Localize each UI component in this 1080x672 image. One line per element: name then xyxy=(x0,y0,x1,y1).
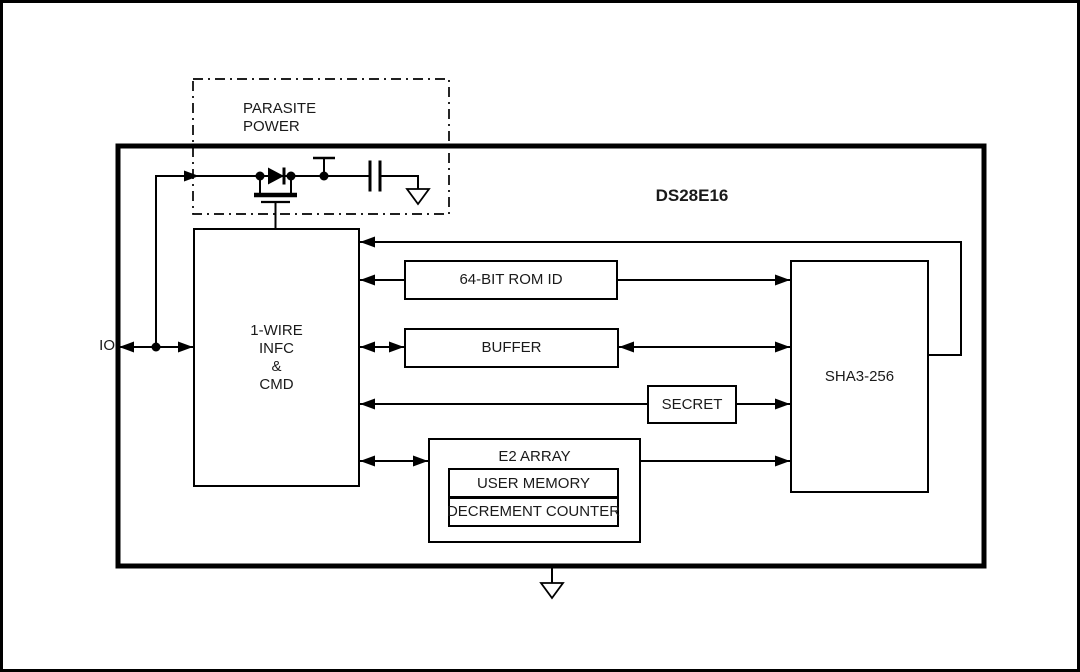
parasite-power-label: PARASITE POWER xyxy=(243,100,363,136)
diode-icon xyxy=(268,168,284,185)
arrowhead-left xyxy=(360,237,375,248)
sha3-block-label: SHA3-256 xyxy=(791,261,928,492)
arrowhead-right xyxy=(184,171,199,182)
buffer-block-label: BUFFER xyxy=(405,329,618,367)
onewire-label-line3: & xyxy=(271,358,281,376)
user-memory-block-label: USER MEMORY xyxy=(449,469,618,498)
parasite-power-label-line2: POWER xyxy=(243,118,300,136)
onewire-block-label: 1-WIRE INFC & CMD xyxy=(194,229,359,486)
parasite-power-label-line1: PARASITE xyxy=(243,100,316,118)
arrowhead-right xyxy=(775,456,790,467)
arrowhead-right xyxy=(413,456,428,467)
arrowhead-left xyxy=(360,456,375,467)
ground-icon xyxy=(541,583,563,598)
arrowhead-right xyxy=(178,342,193,353)
onewire-label-line1: 1-WIRE xyxy=(250,322,303,340)
arrowhead-right xyxy=(775,275,790,286)
arrowhead-right xyxy=(775,342,790,353)
rom-id-block-label: 64-BIT ROM ID xyxy=(405,261,617,299)
arrowhead-left xyxy=(360,399,375,410)
chip-ground xyxy=(541,568,563,598)
capacitor-icon xyxy=(370,161,418,192)
mosfet-icon xyxy=(254,176,297,230)
arrowhead-left xyxy=(360,275,375,286)
chip-title: DS28E16 xyxy=(603,187,781,205)
arrowhead-left xyxy=(360,342,375,353)
onewire-label-line4: CMD xyxy=(259,376,293,394)
io-pin-label: IO xyxy=(65,337,115,355)
secret-block-label: SECRET xyxy=(648,386,736,423)
arrowhead-left xyxy=(119,342,134,353)
arrowhead-left xyxy=(619,342,634,353)
onewire-label-line2: INFC xyxy=(259,340,294,358)
arrowhead-right xyxy=(775,399,790,410)
block-diagram: DS28E16 PARASITE POWER IO 1-WIRE INFC & … xyxy=(0,0,1080,672)
decrement-counter-block-label: DECREMENT COUNTER xyxy=(449,497,618,526)
power-tap-icon xyxy=(313,158,335,176)
ground-icon xyxy=(407,189,429,204)
arrowhead-right xyxy=(389,342,404,353)
